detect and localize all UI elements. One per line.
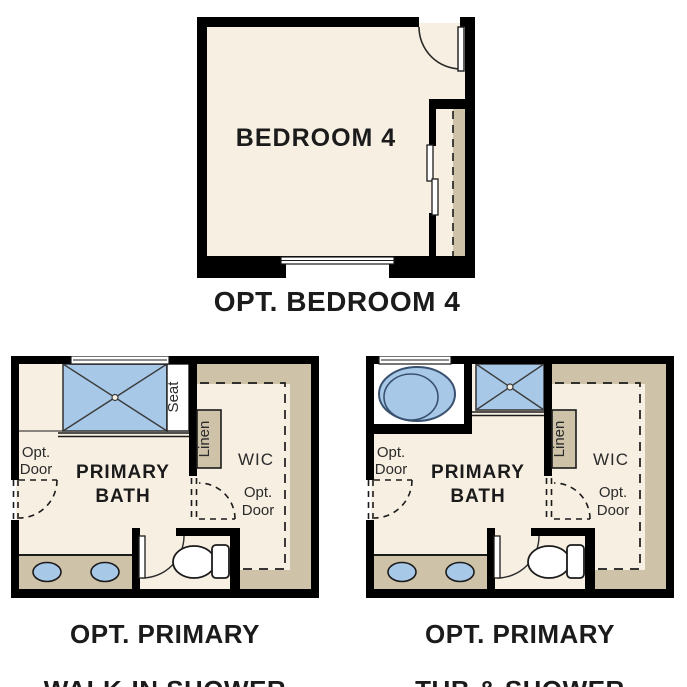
opt-door-right-label-2-1: Opt. (599, 484, 627, 501)
divider-wall (189, 364, 197, 476)
primary-bath-label-2-1: PRIMARY (431, 462, 525, 483)
tub-shower-caption-line1: OPT. PRIMARY (425, 619, 615, 649)
sink-right (91, 563, 119, 582)
toilet (173, 545, 229, 578)
floorplan-sheet: BEDROOM 4 OPT. BEDROOM 4 (0, 0, 687, 687)
bedroom-window (281, 257, 394, 278)
opt-door-left-label-2-2: Door (375, 461, 408, 478)
walk-in-shower-caption-line1: OPT. PRIMARY (70, 619, 260, 649)
closet-sliding-door-1 (427, 145, 433, 181)
opt-door-right-label-1: Opt. (244, 484, 272, 501)
divider-wall-2 (544, 364, 552, 476)
opt-door-left-label-2: Door (20, 461, 53, 478)
sink-left (33, 563, 61, 582)
shower-window-overlay (71, 356, 169, 364)
plan-tub-shower-drawing: Linen (366, 356, 674, 598)
shower-seat: Seat (165, 364, 189, 431)
sink-left-2 (388, 563, 416, 582)
wic-label-2: WIC (593, 450, 629, 469)
bedroom-door-leaf (458, 27, 464, 71)
plan-tub-shower: Linen (366, 356, 674, 598)
shower (472, 364, 548, 416)
primary-bath-label-2: BATH (95, 486, 150, 507)
plan-walk-in-shower-drawing: Seat Linen (11, 356, 319, 598)
wc-door-leaf (139, 536, 145, 578)
bathtub (374, 364, 464, 425)
opt-door-left-label-1: Opt. (22, 444, 50, 461)
linen-label-2: Linen (551, 421, 568, 458)
seat-label: Seat (165, 381, 182, 413)
walk-in-shower-caption: OPT. PRIMARY WALK-IN SHOWER (15, 620, 315, 687)
linen-label: Linen (196, 421, 213, 458)
tub-shower-caption: OPT. PRIMARY TUB & SHOWER (370, 620, 670, 687)
linen-cabinet: Linen (196, 410, 221, 468)
bedroom-room-label: BEDROOM 4 (236, 124, 396, 152)
closet-shelf (453, 109, 465, 256)
tub-window (379, 356, 451, 364)
vanity (19, 555, 132, 590)
toilet-2 (528, 545, 584, 578)
shower-drain-2 (507, 384, 513, 390)
sink-right-2 (446, 563, 474, 582)
plan-bedroom4-drawing: BEDROOM 4 (197, 17, 475, 279)
bedroom-caption: OPT. BEDROOM 4 (187, 288, 487, 316)
opt-door-left-label-2-1: Opt. (377, 444, 405, 461)
linen-cabinet-2: Linen (551, 410, 576, 468)
shower-drain (112, 395, 118, 401)
vanity-2 (374, 555, 487, 590)
opt-door-right-label-2: Door (242, 502, 275, 519)
plan-bedroom4: BEDROOM 4 (197, 17, 475, 279)
tub-shower-caption-line2: TUB & SHOWER (415, 675, 625, 687)
wc-door-leaf-2 (494, 536, 500, 578)
plan-walk-in-shower: Seat Linen (11, 356, 319, 598)
opt-door-right-label-2-2: Door (597, 502, 630, 519)
primary-bath-label-2-2: BATH (450, 486, 505, 507)
primary-bath-label-1: PRIMARY (76, 462, 170, 483)
closet-sliding-door-2 (432, 179, 438, 215)
walk-in-shower-caption-line2: WALK-IN SHOWER (44, 675, 286, 687)
wic-label: WIC (238, 450, 274, 469)
